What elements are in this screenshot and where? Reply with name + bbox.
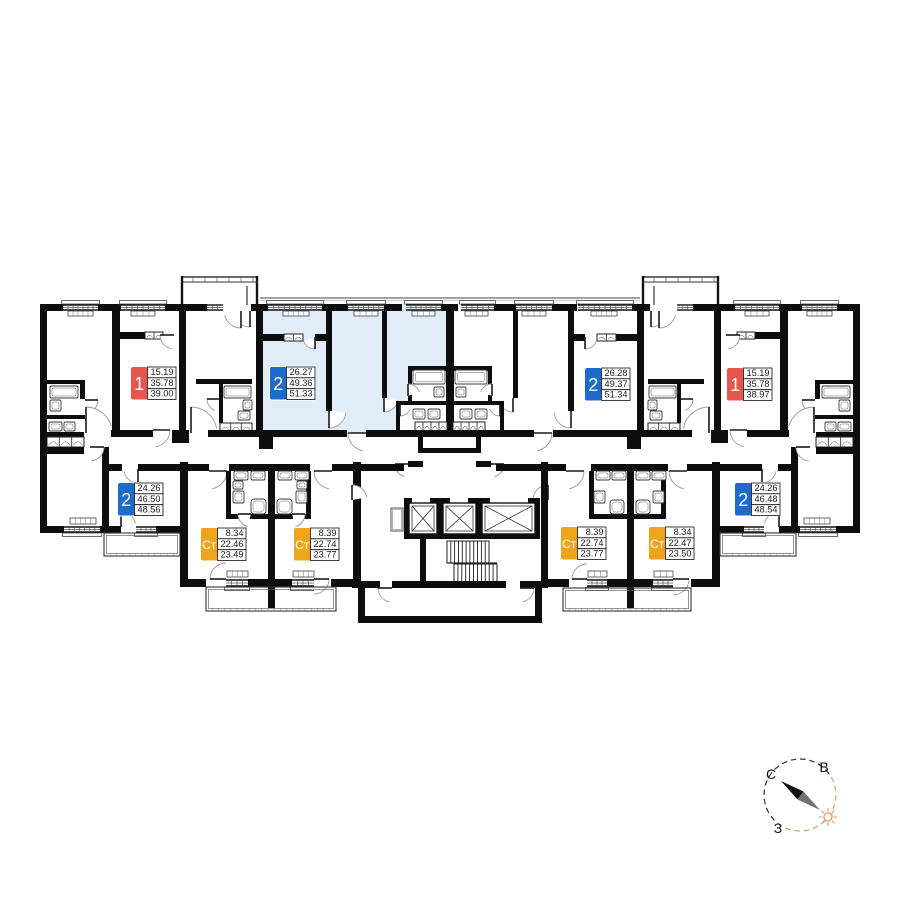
svg-text:В: В — [819, 759, 828, 775]
svg-text:15.19: 15.19 — [151, 367, 174, 377]
svg-text:26.27: 26.27 — [290, 367, 313, 377]
svg-text:8.34: 8.34 — [674, 527, 692, 537]
svg-text:1: 1 — [730, 375, 740, 395]
svg-text:46.50: 46.50 — [138, 494, 161, 504]
svg-text:39.00: 39.00 — [151, 389, 174, 399]
svg-text:2: 2 — [588, 375, 598, 395]
svg-text:46.48: 46.48 — [755, 494, 778, 504]
svg-text:26.28: 26.28 — [605, 368, 628, 378]
svg-text:2: 2 — [273, 374, 283, 394]
svg-text:2: 2 — [738, 490, 748, 510]
svg-text:22.46: 22.46 — [221, 539, 244, 549]
svg-text:1: 1 — [134, 374, 144, 394]
svg-text:24.26: 24.26 — [755, 483, 778, 493]
svg-text:23.49: 23.49 — [221, 550, 244, 560]
svg-text:38.97: 38.97 — [747, 390, 770, 400]
svg-text:Ст: Ст — [202, 538, 217, 552]
svg-text:23.50: 23.50 — [669, 549, 692, 559]
svg-text:З: З — [774, 820, 782, 836]
svg-text:15.19: 15.19 — [747, 368, 770, 378]
svg-text:48.56: 48.56 — [138, 505, 161, 515]
svg-text:8.34: 8.34 — [226, 528, 244, 538]
svg-text:Ст: Ст — [562, 537, 577, 551]
svg-text:22.47: 22.47 — [669, 538, 692, 548]
svg-text:35.78: 35.78 — [151, 378, 174, 388]
svg-text:49.37: 49.37 — [605, 379, 628, 389]
svg-text:51.33: 51.33 — [290, 389, 313, 399]
svg-text:Ст: Ст — [650, 537, 665, 551]
svg-text:51.34: 51.34 — [605, 390, 628, 400]
svg-text:22.74: 22.74 — [581, 538, 604, 548]
svg-text:С: С — [766, 766, 776, 782]
svg-text:8.39: 8.39 — [319, 528, 337, 538]
svg-text:8.39: 8.39 — [586, 527, 604, 537]
svg-text:22.74: 22.74 — [314, 539, 337, 549]
svg-text:2: 2 — [121, 490, 131, 510]
svg-text:48.54: 48.54 — [755, 505, 778, 515]
svg-text:23.77: 23.77 — [581, 549, 604, 559]
svg-text:49.36: 49.36 — [290, 378, 313, 388]
svg-text:Ст: Ст — [295, 538, 310, 552]
svg-text:24.26: 24.26 — [138, 483, 161, 493]
svg-text:35.78: 35.78 — [747, 379, 770, 389]
svg-text:23.77: 23.77 — [314, 550, 337, 560]
